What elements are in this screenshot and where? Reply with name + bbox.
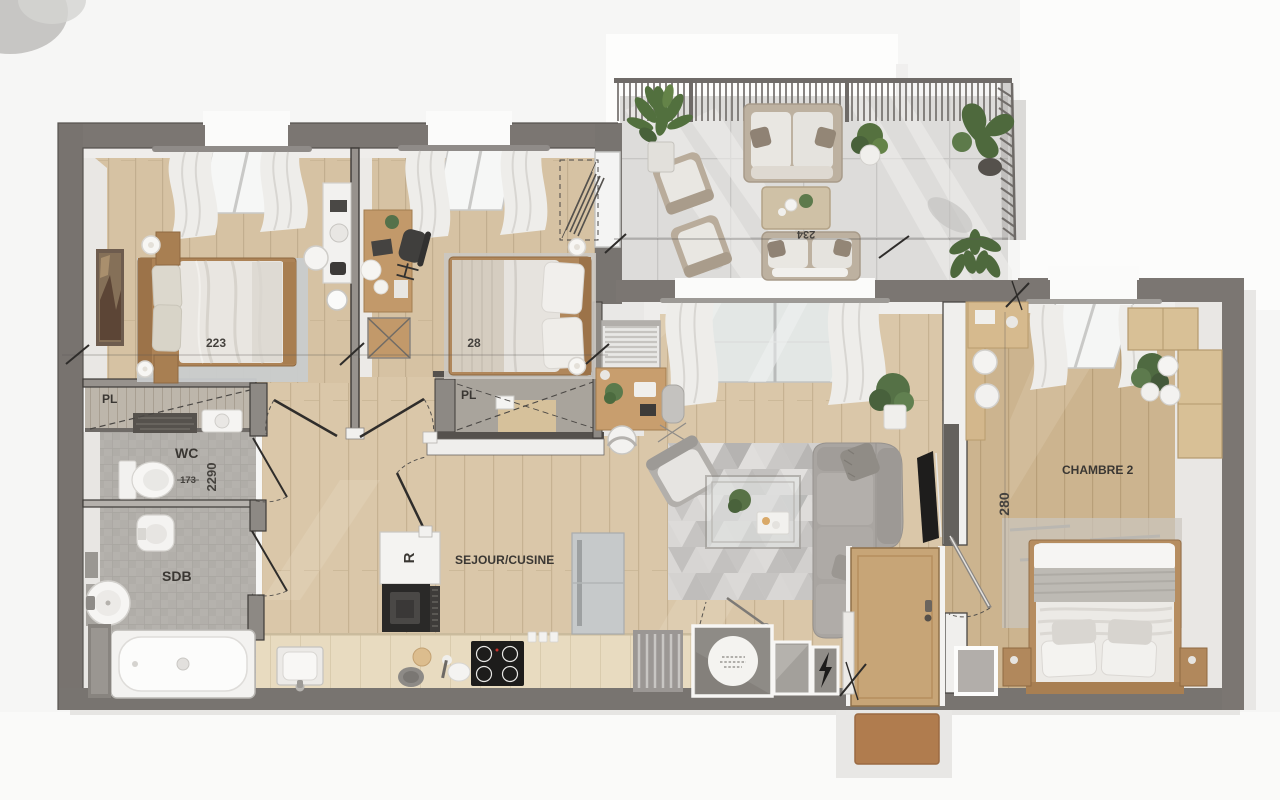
svg-text:R: R [401,552,418,563]
svg-text:223: 223 [206,336,226,350]
svg-text:CHAMBRE 2: CHAMBRE 2 [1062,463,1134,477]
svg-text:SDB: SDB [162,568,192,584]
svg-text:2290: 2290 [204,463,219,492]
svg-text:WC: WC [175,445,198,461]
svg-text:PL: PL [461,388,476,402]
svg-text:28: 28 [467,336,481,350]
svg-text:234: 234 [796,228,815,240]
svg-text:173: 173 [180,475,196,486]
svg-text:280: 280 [996,492,1012,516]
svg-text:SEJOUR/CUSINE: SEJOUR/CUSINE [455,553,554,567]
svg-text:PL: PL [102,392,117,406]
